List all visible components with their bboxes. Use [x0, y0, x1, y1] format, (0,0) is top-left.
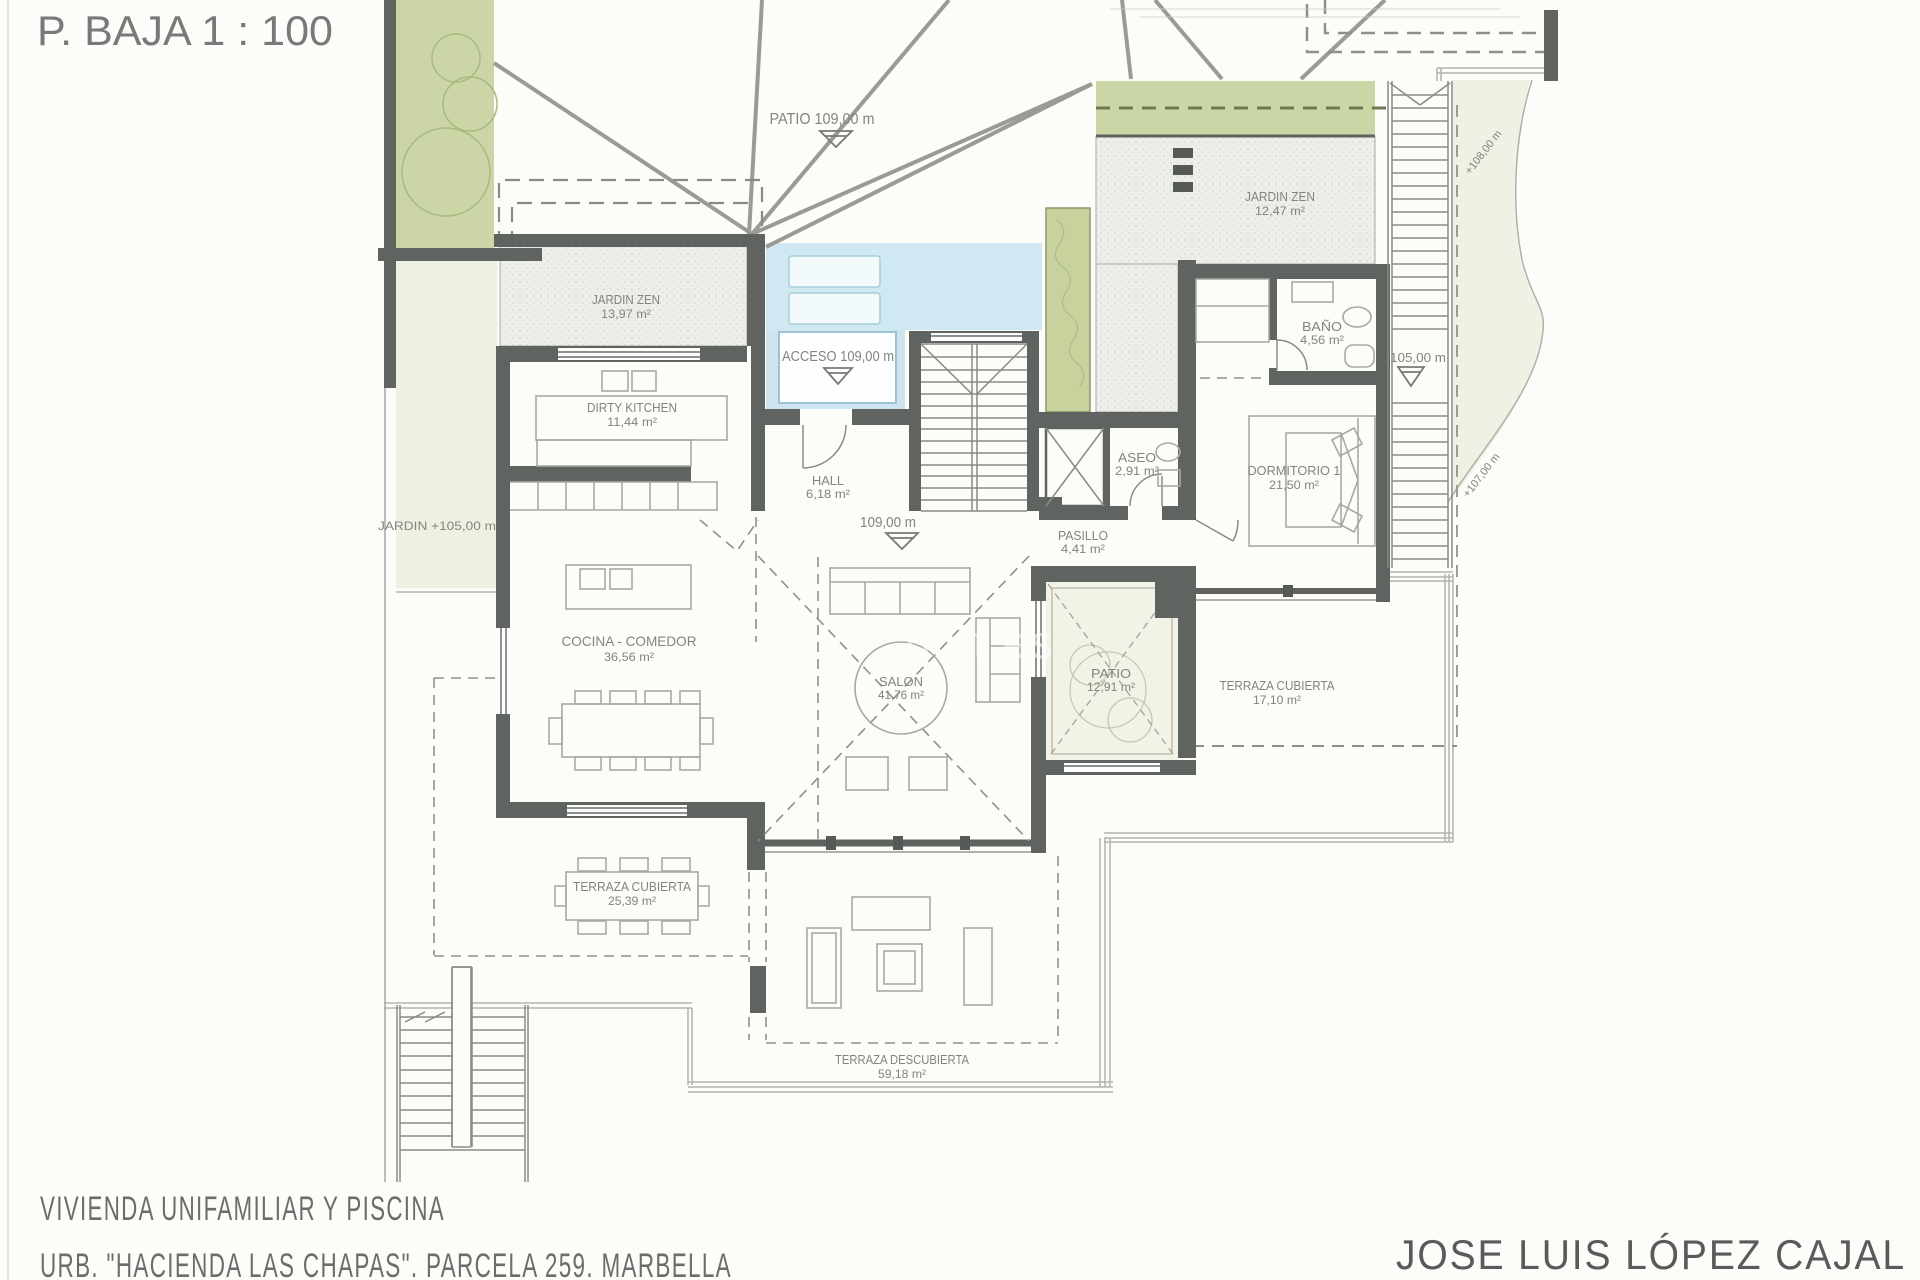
- svg-text:SALON: SALON: [879, 674, 923, 689]
- svg-text:109,00 m: 109,00 m: [860, 514, 916, 531]
- svg-text:17,10 m²: 17,10 m²: [1253, 693, 1301, 707]
- svg-text:ASEO: ASEO: [1118, 450, 1156, 465]
- svg-text:JARDIN ZEN: JARDIN ZEN: [592, 292, 660, 307]
- svg-text:12,47 m²: 12,47 m²: [1255, 204, 1305, 218]
- svg-text:36,56 m²: 36,56 m²: [604, 650, 654, 664]
- svg-text:DORMITORIO 1: DORMITORIO 1: [1248, 463, 1341, 478]
- svg-text:11,44 m²: 11,44 m²: [607, 415, 657, 429]
- svg-text:nmt.es: nmt.es: [905, 616, 1055, 668]
- svg-text:2,91 m²: 2,91 m²: [1115, 464, 1159, 478]
- svg-text:HALL: HALL: [812, 473, 844, 488]
- svg-text:JARDIN +105,00 m: JARDIN +105,00 m: [378, 519, 496, 533]
- svg-text:13,97 m²: 13,97 m²: [601, 307, 651, 321]
- svg-text:P. BAJA 1 : 100: P. BAJA 1 : 100: [37, 7, 333, 54]
- svg-text:COCINA - COMEDOR: COCINA - COMEDOR: [562, 633, 697, 649]
- svg-text:PATIO 109,00 m: PATIO 109,00 m: [770, 111, 875, 128]
- svg-text:PATIO: PATIO: [1091, 666, 1131, 681]
- svg-text:4,41 m²: 4,41 m²: [1061, 542, 1105, 556]
- svg-text:JARDIN ZEN: JARDIN ZEN: [1245, 189, 1315, 204]
- svg-text:6,18 m²: 6,18 m²: [806, 487, 850, 501]
- svg-text:21,50 m²: 21,50 m²: [1269, 478, 1319, 492]
- svg-text:4,56 m²: 4,56 m²: [1300, 333, 1344, 347]
- svg-text:JOSE LUIS LÓPEZ CAJAL: JOSE LUIS LÓPEZ CAJAL: [1396, 1231, 1906, 1278]
- svg-text:URB. "HACIENDA LAS CHAPAS". PA: URB. "HACIENDA LAS CHAPAS". PARCELA 259.…: [40, 1247, 732, 1280]
- svg-text:TERRAZA CUBIERTA: TERRAZA CUBIERTA: [1220, 678, 1335, 693]
- svg-text:PASILLO: PASILLO: [1058, 528, 1108, 543]
- svg-text:TERRAZA CUBIERTA: TERRAZA CUBIERTA: [573, 879, 691, 894]
- svg-text:25,39 m²: 25,39 m²: [608, 894, 656, 908]
- svg-text:ACCESO 109,00 m: ACCESO 109,00 m: [782, 348, 894, 365]
- svg-text:BAÑO: BAÑO: [1302, 319, 1342, 334]
- svg-text:VIVIENDA UNIFAMILIAR Y PISCINA: VIVIENDA UNIFAMILIAR Y PISCINA: [40, 1190, 445, 1228]
- svg-text:41,76 m²: 41,76 m²: [878, 688, 924, 702]
- svg-text:TERRAZA DESCUBIERTA: TERRAZA DESCUBIERTA: [835, 1052, 969, 1067]
- svg-text:59,18 m²: 59,18 m²: [878, 1067, 926, 1081]
- svg-text:12,91 m²: 12,91 m²: [1087, 680, 1135, 694]
- svg-text:105,00 m: 105,00 m: [1390, 350, 1446, 365]
- svg-text:DIRTY KITCHEN: DIRTY KITCHEN: [587, 400, 677, 415]
